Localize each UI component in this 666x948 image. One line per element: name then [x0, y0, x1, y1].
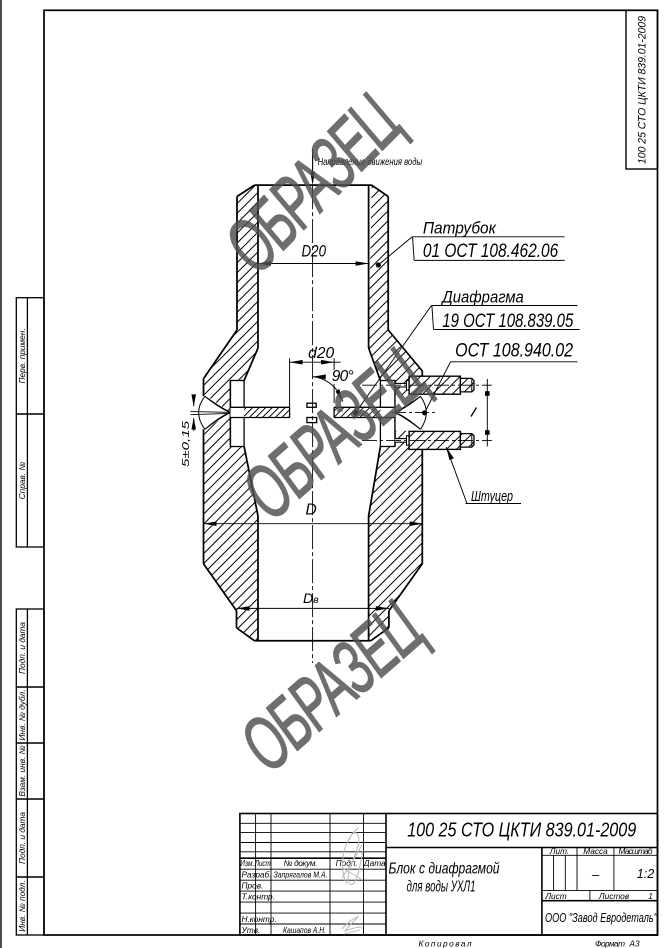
svg-text:19 ОСТ 108.839.05: 19 ОСТ 108.839.05 [442, 310, 573, 332]
svg-text:Инв. № дубл.: Инв. № дубл. [17, 689, 27, 740]
svg-text:Лит.: Лит. [549, 846, 569, 856]
svg-text:Копировал: Копировал [419, 939, 472, 948]
svg-text:Пров.: Пров. [242, 881, 264, 891]
svg-text:Лист: Лист [254, 858, 271, 868]
svg-text:1: 1 [648, 891, 653, 901]
svg-text:Масштаб: Масштаб [619, 846, 653, 856]
svg-text:Кашапов А.Н.: Кашапов А.Н. [283, 925, 326, 935]
svg-text:Подп.: Подп. [336, 858, 358, 868]
svg-text:Dв: Dв [303, 590, 319, 606]
svg-text:ОСТ 108.940.02: ОСТ 108.940.02 [455, 340, 573, 362]
svg-text:Лист: Лист [544, 891, 566, 901]
svg-text:100 25 СТО ЦКТИ 839.01-2009: 100 25 СТО ЦКТИ 839.01-2009 [637, 16, 649, 164]
svg-text:Разраб.: Разраб. [242, 869, 272, 879]
svg-text:Подп. и дата: Подп. и дата [17, 812, 27, 864]
svg-text:Патрубок: Патрубок [423, 218, 497, 237]
svg-text:1:2: 1:2 [637, 867, 654, 881]
svg-text:Подп. и дата: Подп. и дата [17, 622, 27, 674]
svg-text:Формат: Формат [595, 939, 625, 948]
svg-text:Н.контр.: Н.контр. [242, 914, 277, 924]
svg-text:Справ. №: Справ. № [17, 462, 27, 500]
svg-text:Изм.: Изм. [240, 858, 254, 868]
svg-text:100 25 СТО ЦКТИ 839.01-2009: 100 25 СТО ЦКТИ 839.01-2009 [407, 820, 636, 842]
svg-text:Взам. инв. №: Взам. инв. № [17, 745, 27, 796]
svg-text:Масса: Масса [583, 846, 608, 856]
svg-text:Штуцер: Штуцер [471, 489, 513, 505]
svg-text:Листов: Листов [598, 891, 630, 901]
svg-text:А3: А3 [628, 939, 640, 948]
svg-text:Дата: Дата [363, 858, 386, 868]
svg-text:Инв. № подл.: Инв. № подл. [17, 880, 27, 931]
svg-text:ООО "Завод Евродеталь": ООО "Завод Евродеталь" [545, 910, 658, 925]
svg-text:№ докум.: № докум. [284, 858, 318, 868]
svg-text:Блок с диафрагмой: Блок с диафрагмой [389, 860, 500, 877]
svg-text:ОБРАЗЕЦ: ОБРАЗЕЦ [228, 584, 436, 790]
svg-text:Запрягалов М.А.: Запрягалов М.А. [274, 869, 328, 879]
svg-text:для воды УХЛ1: для воды УХЛ1 [407, 879, 476, 896]
svg-text:5±0,15: 5±0,15 [181, 421, 192, 467]
svg-text:Т.контр.: Т.контр. [242, 891, 275, 901]
svg-text:Утв.: Утв. [241, 925, 261, 935]
svg-text:–: – [591, 867, 600, 882]
svg-text:Диафрагма: Диафрагма [441, 288, 524, 307]
svg-text:Перв. примен.: Перв. примен. [17, 328, 27, 383]
svg-text:01 ОСТ 108.462.06: 01 ОСТ 108.462.06 [423, 240, 558, 262]
svg-text:d20: d20 [308, 345, 334, 362]
